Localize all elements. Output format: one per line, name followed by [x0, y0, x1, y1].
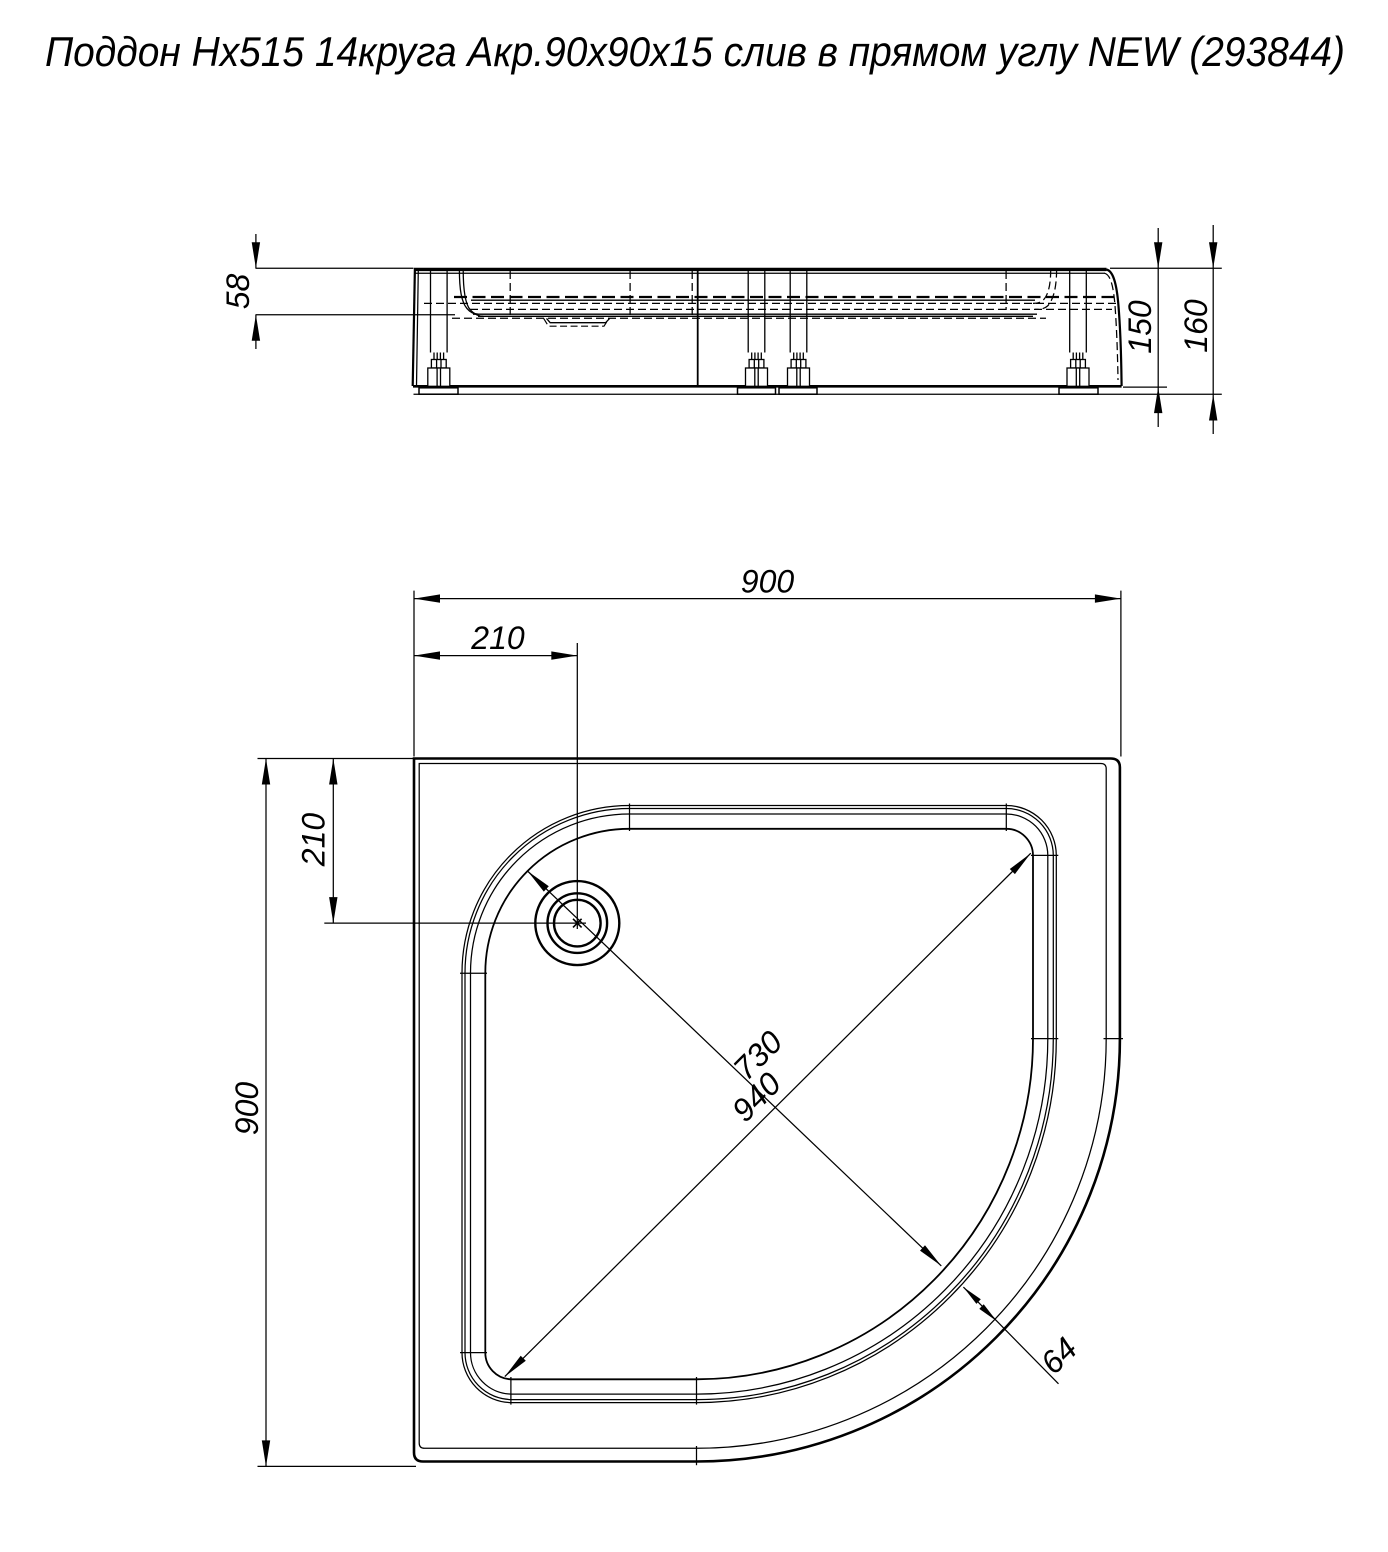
svg-text:160: 160	[1178, 299, 1214, 353]
svg-text:150: 150	[1122, 300, 1158, 354]
svg-text:900: 900	[741, 564, 795, 600]
svg-text:58: 58	[220, 274, 256, 310]
svg-text:Поддон Hx515 14круга Акр.90x90: Поддон Hx515 14круга Акр.90x90x15 слив в…	[45, 28, 1345, 75]
svg-text:900: 900	[229, 1082, 265, 1136]
svg-text:210: 210	[296, 813, 332, 868]
svg-text:210: 210	[470, 620, 525, 656]
